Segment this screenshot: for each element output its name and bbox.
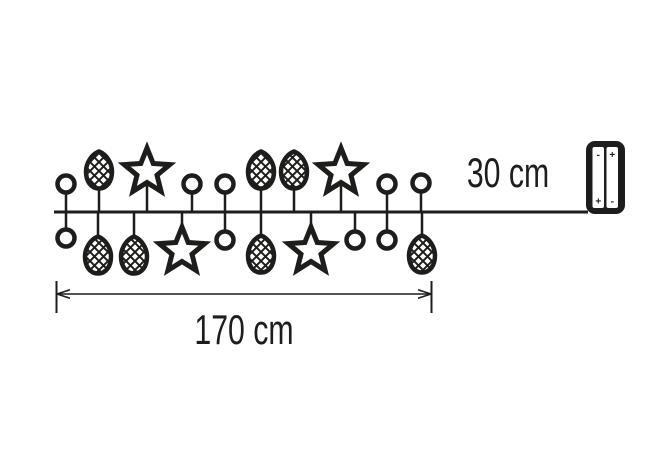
ornament-ball [379,176,396,193]
ornament-ball [217,232,234,249]
ornament-pinecone [121,237,147,274]
battery-polarity-label: - [597,150,600,161]
ornament-star [124,148,170,191]
ornament-pinecone [248,236,274,273]
light-chain-diagram: -++- 30 cm 170 cm [0,0,670,462]
ornament-ball [58,230,75,247]
ornament-ball [184,176,201,193]
ornament-star [288,227,334,270]
ornament-pinecone [248,152,274,189]
ornament-ball [58,176,75,193]
lead-length-label: 30 cm [429,152,587,194]
garland-length-label: 170 cm [165,309,323,351]
battery-housing [586,141,625,214]
diagram-svg: -++- [0,0,670,462]
ornament-pinecone [85,237,111,274]
ornament-star [159,227,205,270]
ornament-ball [413,175,430,192]
ornament-ball [217,176,234,193]
ornament-star [318,148,364,191]
ornament-pinecone [86,152,112,189]
ornament-ball [379,232,396,249]
ornament-ball [347,232,364,249]
battery-box: -++- [586,141,625,214]
battery-polarity-label: + [609,150,615,161]
ornament-pinecone [409,236,435,273]
battery-polarity-label: + [595,197,601,208]
ornament-pinecone [281,152,307,189]
battery-polarity-label: - [611,197,614,208]
